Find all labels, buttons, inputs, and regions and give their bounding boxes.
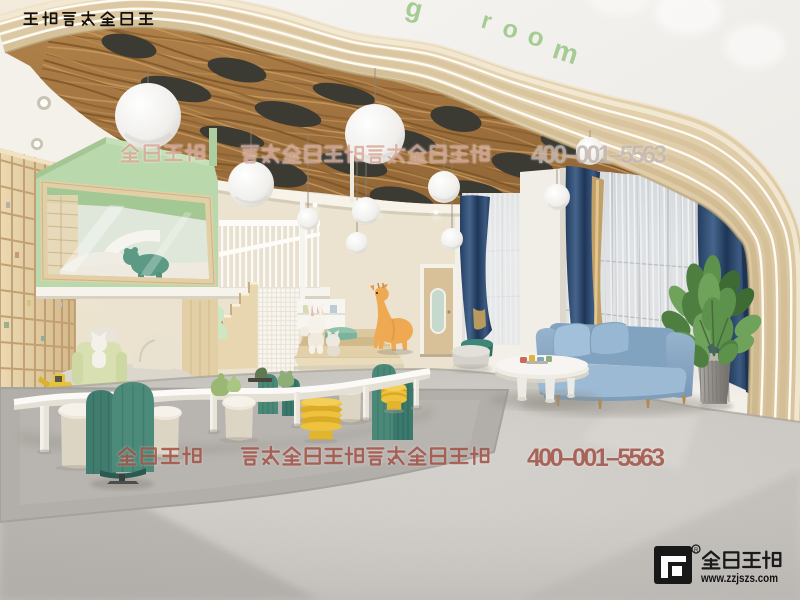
svg-text:www.zzjszs.com: www.zzjszs.com (700, 573, 778, 585)
svg-text:400–001–5563: 400–001–5563 (531, 141, 667, 169)
svg-text:R: R (694, 548, 699, 554)
svg-text:400–001–5563: 400–001–5563 (527, 444, 665, 472)
